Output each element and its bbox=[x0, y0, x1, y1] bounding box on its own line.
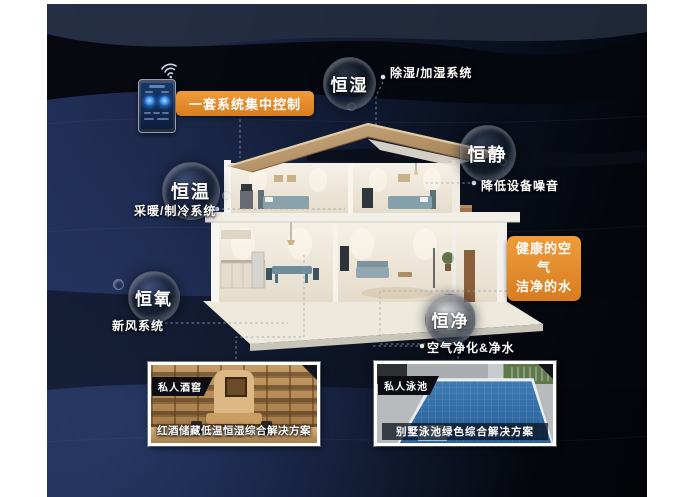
bubble-constant-oxygen: 恒氧 bbox=[128, 271, 180, 323]
wine-cellar-caption: 红酒储藏低温恒湿综合解决方案 bbox=[151, 423, 317, 438]
bubble-constant-quiet: 恒静 bbox=[459, 125, 516, 182]
bubble-label: 恒温 bbox=[171, 178, 211, 204]
bubble-label: 恒湿 bbox=[331, 71, 369, 96]
phone-screen bbox=[141, 83, 173, 129]
wine-cellar-picture bbox=[225, 377, 247, 397]
label-fresh-air-system: 新风系统 bbox=[112, 317, 164, 334]
healthy-air-water-box: 健康的空气 洁净的水 bbox=[507, 236, 581, 301]
pool-tag: 私人泳池 bbox=[378, 376, 439, 395]
decorative-bubble bbox=[113, 279, 124, 290]
label-dehumidify-system: 除湿/加湿系统 bbox=[390, 64, 472, 81]
label-heating-cooling-system: 采暖/制冷系统 bbox=[134, 202, 216, 219]
bubble-label: 恒净 bbox=[432, 307, 470, 332]
bubble-label: 恒氧 bbox=[135, 285, 173, 310]
label-noise-reduction: 降低设备噪音 bbox=[481, 177, 559, 194]
pool-caption: 别墅泳池绿色综合解决方案 bbox=[396, 424, 534, 439]
label-air-water-purification: 空气净化&净水 bbox=[427, 339, 515, 356]
bubble-label: 恒静 bbox=[468, 141, 508, 167]
decorative-bubble bbox=[222, 191, 231, 200]
smart-home-infographic: 一套系统集中控制 恒湿 恒静 恒温 恒氧 恒净 除湿/加湿系统 降低设备噪音 采… bbox=[0, 0, 700, 497]
wifi-icon bbox=[159, 60, 183, 79]
phone-dial-left bbox=[144, 96, 155, 107]
bubble-constant-clean: 恒净 bbox=[425, 294, 476, 345]
wine-cellar-photo: 私人酒窖 红酒储藏低温恒湿综合解决方案 bbox=[151, 365, 317, 443]
smart-home-control-phone bbox=[138, 79, 176, 133]
central-control-text: 一套系统集中控制 bbox=[189, 97, 301, 112]
wine-cellar-card: 私人酒窖 红酒储藏低温恒湿综合解决方案 bbox=[148, 362, 320, 446]
central-control-label: 一套系统集中控制 bbox=[176, 91, 314, 116]
corner-fold bbox=[538, 364, 553, 379]
corner-fold bbox=[302, 365, 317, 380]
pool-card: 私人泳池 别墅泳池绿色综合解决方案 bbox=[374, 361, 556, 446]
phone-header-bar bbox=[149, 85, 165, 88]
pool-photo: 私人泳池 别墅泳池绿色综合解决方案 bbox=[377, 364, 553, 443]
house-ground-floor bbox=[211, 220, 507, 302]
highlight-line1: 健康的空气 bbox=[515, 240, 573, 278]
highlight-line2: 洁净的水 bbox=[515, 278, 573, 297]
wine-cellar-tag: 私人酒窖 bbox=[152, 377, 213, 396]
phone-dial-right bbox=[159, 96, 170, 107]
bubble-constant-humidity: 恒湿 bbox=[323, 57, 376, 110]
pool-caption-band: 别墅泳池绿色综合解决方案 bbox=[382, 423, 548, 440]
